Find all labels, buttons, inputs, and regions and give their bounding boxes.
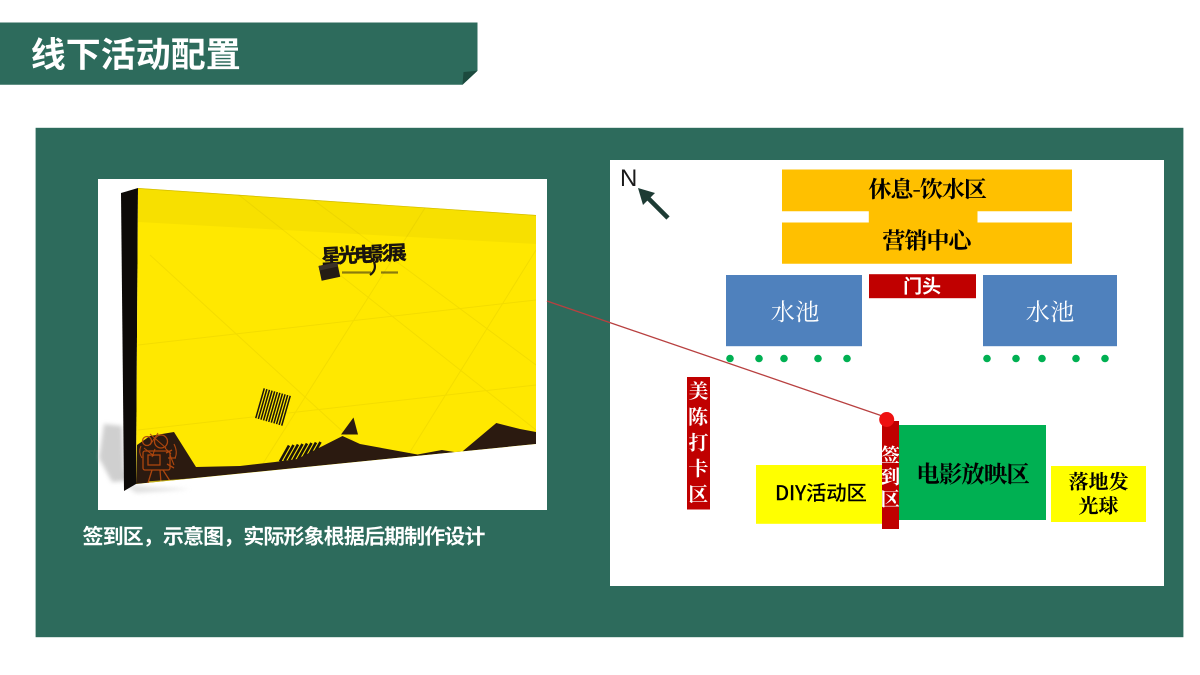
svg-text:N: N [620, 165, 637, 192]
